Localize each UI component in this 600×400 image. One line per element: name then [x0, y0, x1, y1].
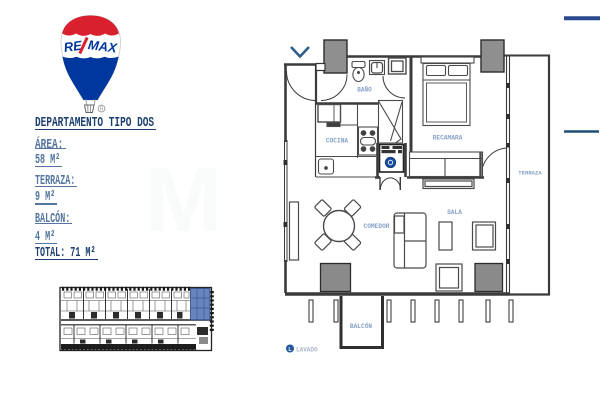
svg-text:TERRAZA: TERRAZA — [518, 170, 542, 177]
svg-text:BALCÓN: BALCÓN — [350, 323, 373, 330]
svg-text:R: R — [100, 107, 104, 113]
svg-text:L: L — [288, 347, 291, 353]
svg-text:LAVADO: LAVADO — [296, 347, 318, 354]
svg-text:COCINA: COCINA — [326, 138, 349, 145]
svg-text:COMEDOR: COMEDOR — [364, 223, 390, 230]
svg-text:RECAMARA: RECAMARA — [433, 135, 463, 142]
svg-text:SALA: SALA — [447, 209, 462, 216]
svg-text:BAÑO: BAÑO — [357, 87, 372, 94]
